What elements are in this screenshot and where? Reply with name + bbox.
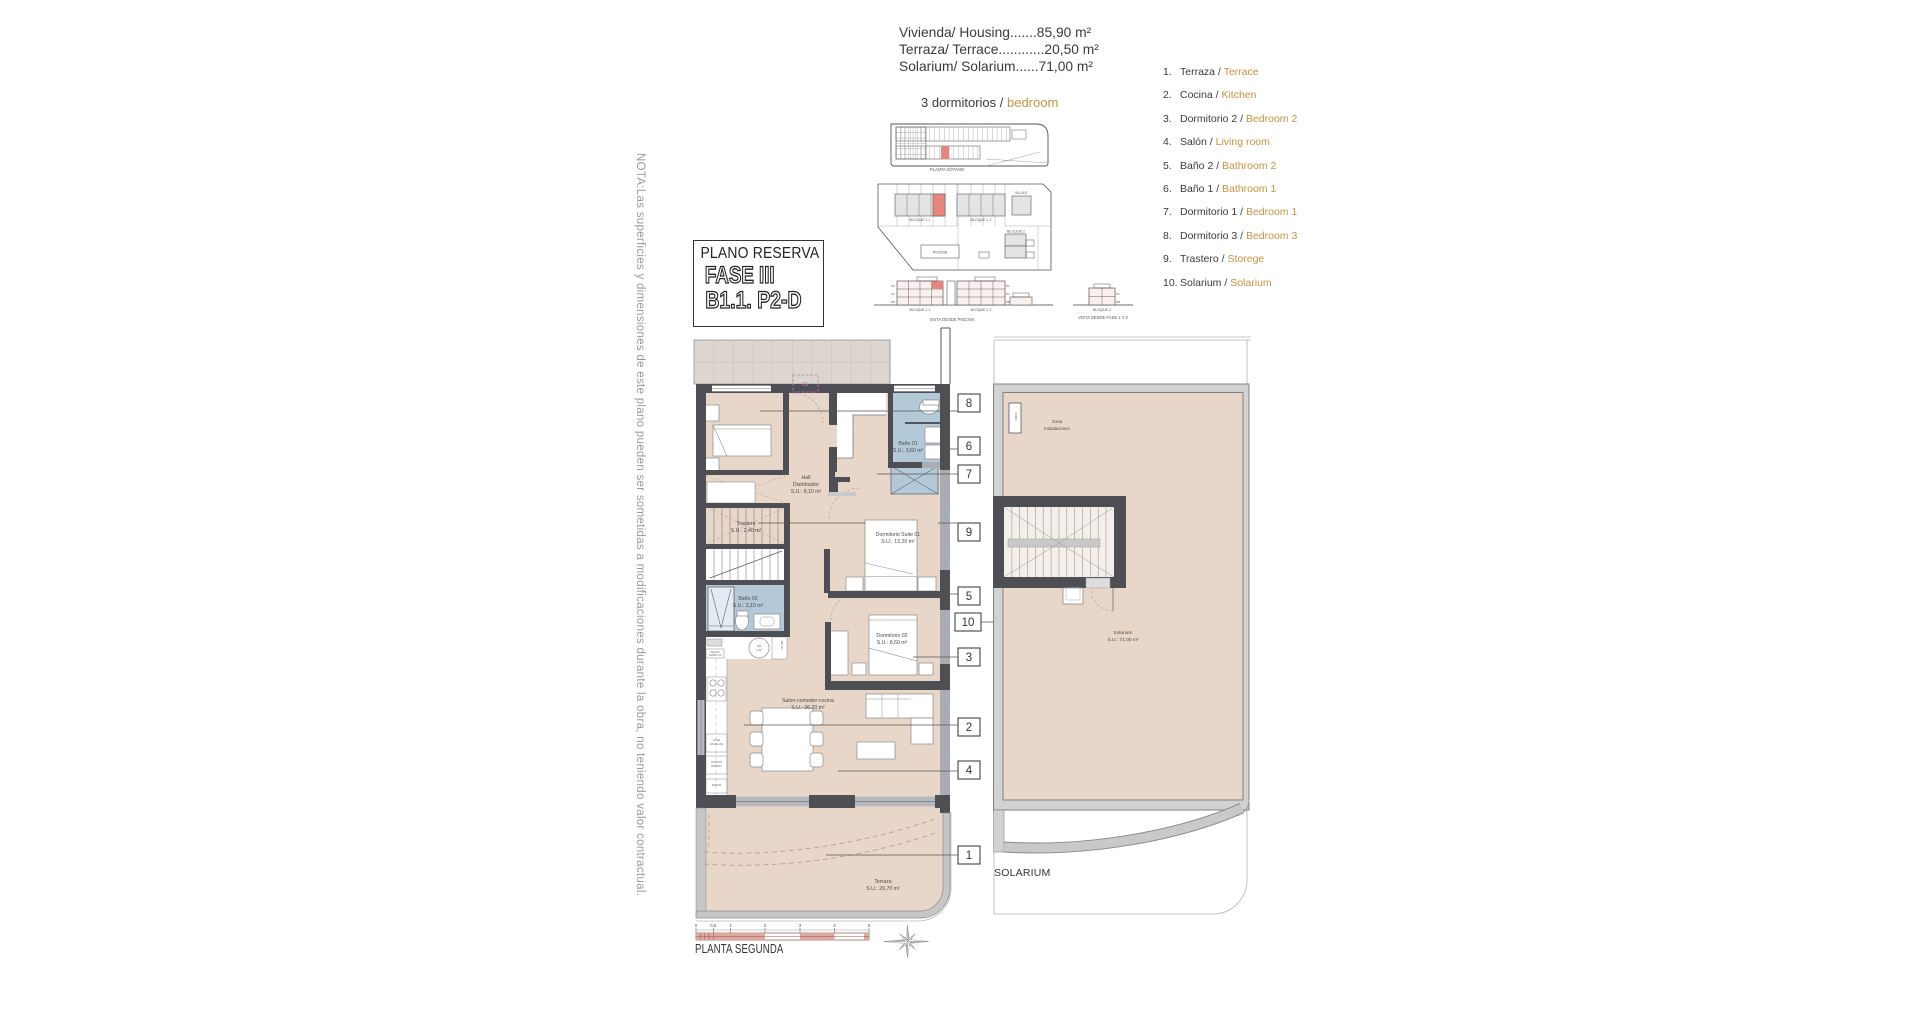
svg-text:TERMO W: TERMO W xyxy=(709,653,722,657)
svg-text:S.U.: 20,70 m²: S.U.: 20,70 m² xyxy=(866,886,900,892)
svg-text:LAV: LAV xyxy=(756,648,761,652)
svg-text:Instalaciones: Instalaciones xyxy=(1044,426,1070,431)
svg-text:S.U.: 71,00 m²: S.U.: 71,00 m² xyxy=(1108,637,1139,643)
svg-text:S.U.: 8,10 m²: S.U.: 8,10 m² xyxy=(791,489,822,495)
svg-text:PB: PB xyxy=(1006,300,1010,304)
svg-text:BLOQUE 1.2: BLOQUE 1.2 xyxy=(971,308,992,312)
svg-text:FRIGO: FRIGO xyxy=(712,783,722,787)
svg-text:BLOQUE 1.1: BLOQUE 1.1 xyxy=(910,308,931,312)
svg-text:VAJILLAS: VAJILLAS xyxy=(710,742,723,746)
svg-text:Salon-comedor-cocina: Salon-comedor-cocina xyxy=(782,698,834,704)
svg-text:Baño 02: Baño 02 xyxy=(738,596,757,602)
svg-text:1: 1 xyxy=(966,850,972,862)
svg-text:VILLAS: VILLAS xyxy=(1015,191,1028,195)
svg-text:4: 4 xyxy=(966,765,973,777)
svg-text:Dormitorio Suite 01: Dormitorio Suite 01 xyxy=(876,532,921,538)
svg-text:P2: P2 xyxy=(1006,284,1010,288)
svg-text:Baño 01: Baño 01 xyxy=(898,441,917,447)
svg-text:PISCINA: PISCINA xyxy=(933,251,948,255)
svg-text:VISTA DESDE PISCINA: VISTA DESDE PISCINA xyxy=(929,317,974,322)
svg-text:0,5: 0,5 xyxy=(710,923,717,928)
svg-text:Zona: Zona xyxy=(1052,419,1063,424)
svg-text:HELAD: HELAD xyxy=(780,641,784,650)
svg-text:BLOQUE 2: BLOQUE 2 xyxy=(1007,230,1025,234)
svg-text:4: 4 xyxy=(833,923,836,928)
svg-text:BLOQUE 1.2: BLOQUE 1.2 xyxy=(971,218,992,222)
svg-text:Distribuidor: Distribuidor xyxy=(793,482,820,488)
svg-text:0: 0 xyxy=(695,923,698,928)
svg-text:S.U.: 8,60 m²: S.U.: 8,60 m² xyxy=(877,640,908,646)
svg-text:5: 5 xyxy=(868,923,871,928)
svg-text:Trastero: Trastero xyxy=(736,521,755,527)
svg-text:P2: P2 xyxy=(891,284,895,288)
svg-text:PB: PB xyxy=(1116,300,1120,304)
svg-text:P1: P1 xyxy=(891,292,895,296)
svg-text:Solarium: Solarium xyxy=(1114,630,1133,636)
svg-text:MICRO: MICRO xyxy=(712,764,723,768)
svg-text:ZONA: ZONA xyxy=(1014,412,1018,420)
svg-text:9: 9 xyxy=(966,527,972,539)
svg-text:S.U.: 3,60 m²: S.U.: 3,60 m² xyxy=(893,448,924,454)
svg-text:5: 5 xyxy=(966,591,972,603)
svg-text:S.U.: 3,10 m²: S.U.: 3,10 m² xyxy=(733,603,764,609)
svg-text:8: 8 xyxy=(966,398,972,410)
svg-text:2: 2 xyxy=(764,923,767,928)
svg-text:P1: P1 xyxy=(1116,292,1120,296)
svg-text:S.U.: 26,20 m²: S.U.: 26,20 m² xyxy=(791,705,825,711)
svg-text:BLOQUE 2: BLOQUE 2 xyxy=(1093,308,1111,312)
svg-text:PLANTA SÓTANO: PLANTA SÓTANO xyxy=(930,167,965,172)
svg-text:SS: SS xyxy=(802,382,809,388)
svg-text:2: 2 xyxy=(966,722,972,734)
svg-text:PB: PB xyxy=(891,300,895,304)
svg-text:S.U.: 13,20 m²: S.U.: 13,20 m² xyxy=(881,539,915,545)
svg-text:7: 7 xyxy=(966,469,972,481)
svg-text:BLOQUE 1.1: BLOQUE 1.1 xyxy=(910,218,931,222)
svg-text:1: 1 xyxy=(729,923,732,928)
svg-text:S.U.: 2,40 m²: S.U.: 2,40 m² xyxy=(731,528,762,534)
svg-text:6: 6 xyxy=(966,441,972,453)
svg-text:Terraza: Terraza xyxy=(874,879,891,885)
svg-text:10: 10 xyxy=(962,617,975,629)
svg-text:P1: P1 xyxy=(1006,292,1010,296)
svg-text:Dormitorio 02: Dormitorio 02 xyxy=(876,633,907,639)
svg-text:Hall: Hall xyxy=(802,475,811,481)
svg-text:VISTA DESDE FASE 1 Y 2: VISTA DESDE FASE 1 Y 2 xyxy=(1078,315,1128,320)
svg-text:3: 3 xyxy=(966,652,972,664)
svg-text:3: 3 xyxy=(799,923,802,928)
